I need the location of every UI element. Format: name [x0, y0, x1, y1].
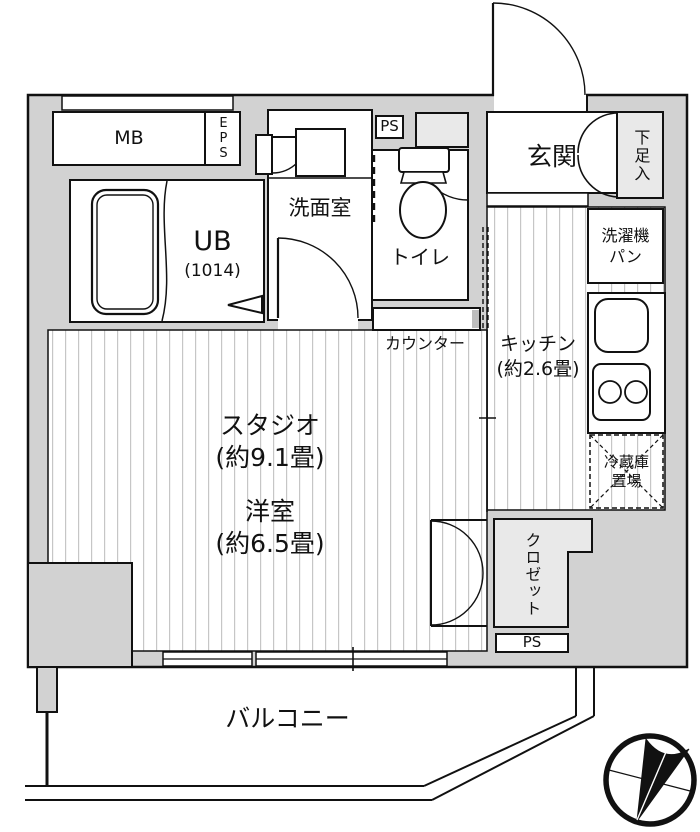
wall-tab	[37, 667, 57, 712]
laundry-pan-box	[588, 209, 663, 283]
balcony-outline	[25, 667, 594, 800]
floor-plan: MB EPS UB (1014) 洗面室 PS トイレ 玄関 下足入 洗濯機 パ…	[0, 0, 700, 832]
bathtub-icon	[92, 190, 158, 314]
washbasin-icon	[296, 129, 345, 176]
entrance-step	[487, 193, 588, 206]
counter	[373, 308, 480, 330]
floor-plan-drawing	[0, 0, 700, 832]
entrance-door-arc	[493, 3, 585, 95]
pipe-space-upper	[376, 116, 403, 138]
toilet-icon	[399, 148, 449, 172]
meter-box-room	[53, 112, 205, 165]
washbasin-door-pocket	[256, 135, 272, 174]
pipe-space-lower	[496, 634, 568, 652]
north-arrow-icon	[605, 736, 694, 824]
washroom-doorway	[278, 318, 358, 331]
shoe-cabinet	[617, 112, 663, 198]
top-wall-window	[62, 96, 233, 110]
toilet-tank	[416, 113, 468, 147]
counter-cap	[472, 310, 479, 328]
eps-shaft	[205, 112, 240, 165]
entrance-doorway	[494, 93, 586, 111]
toilet-bowl	[400, 182, 446, 238]
wall-block-bottom-left	[28, 563, 132, 667]
entrance-hall	[487, 112, 617, 193]
